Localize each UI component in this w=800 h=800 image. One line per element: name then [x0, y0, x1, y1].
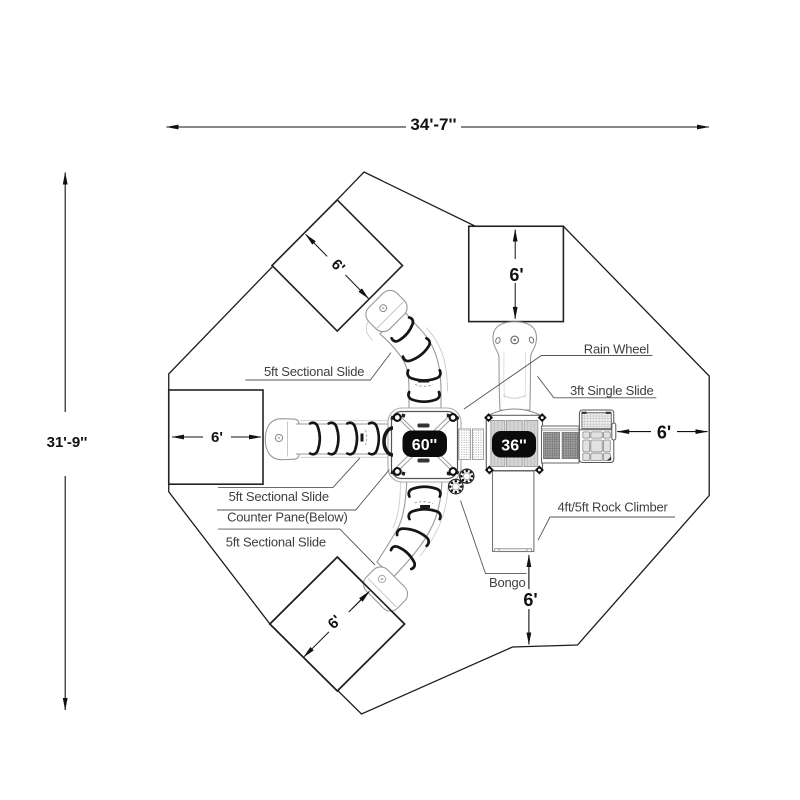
svg-text:5ft Sectional Slide: 5ft Sectional Slide [229, 489, 329, 504]
svg-text:3ft Single Slide: 3ft Single Slide [570, 383, 654, 398]
svg-text:5ft Sectional Slide: 5ft Sectional Slide [264, 364, 364, 379]
svg-text:6': 6' [523, 590, 537, 610]
svg-text:31'-9'': 31'-9'' [47, 434, 88, 451]
svg-text:34'-7'': 34'-7'' [410, 115, 456, 134]
svg-text:Rain Wheel: Rain Wheel [584, 342, 650, 357]
svg-text:60'': 60'' [412, 437, 437, 454]
svg-text:Bongo: Bongo [489, 575, 526, 590]
svg-text:4ft/5ft Rock Climber: 4ft/5ft Rock Climber [558, 500, 669, 515]
svg-text:36'': 36'' [501, 438, 526, 455]
svg-text:6': 6' [211, 429, 223, 446]
svg-text:Counter Pane(Below): Counter Pane(Below) [227, 510, 348, 525]
svg-text:6': 6' [509, 265, 523, 285]
svg-text:6': 6' [657, 423, 671, 443]
svg-text:5ft Sectional Slide: 5ft Sectional Slide [226, 535, 326, 550]
